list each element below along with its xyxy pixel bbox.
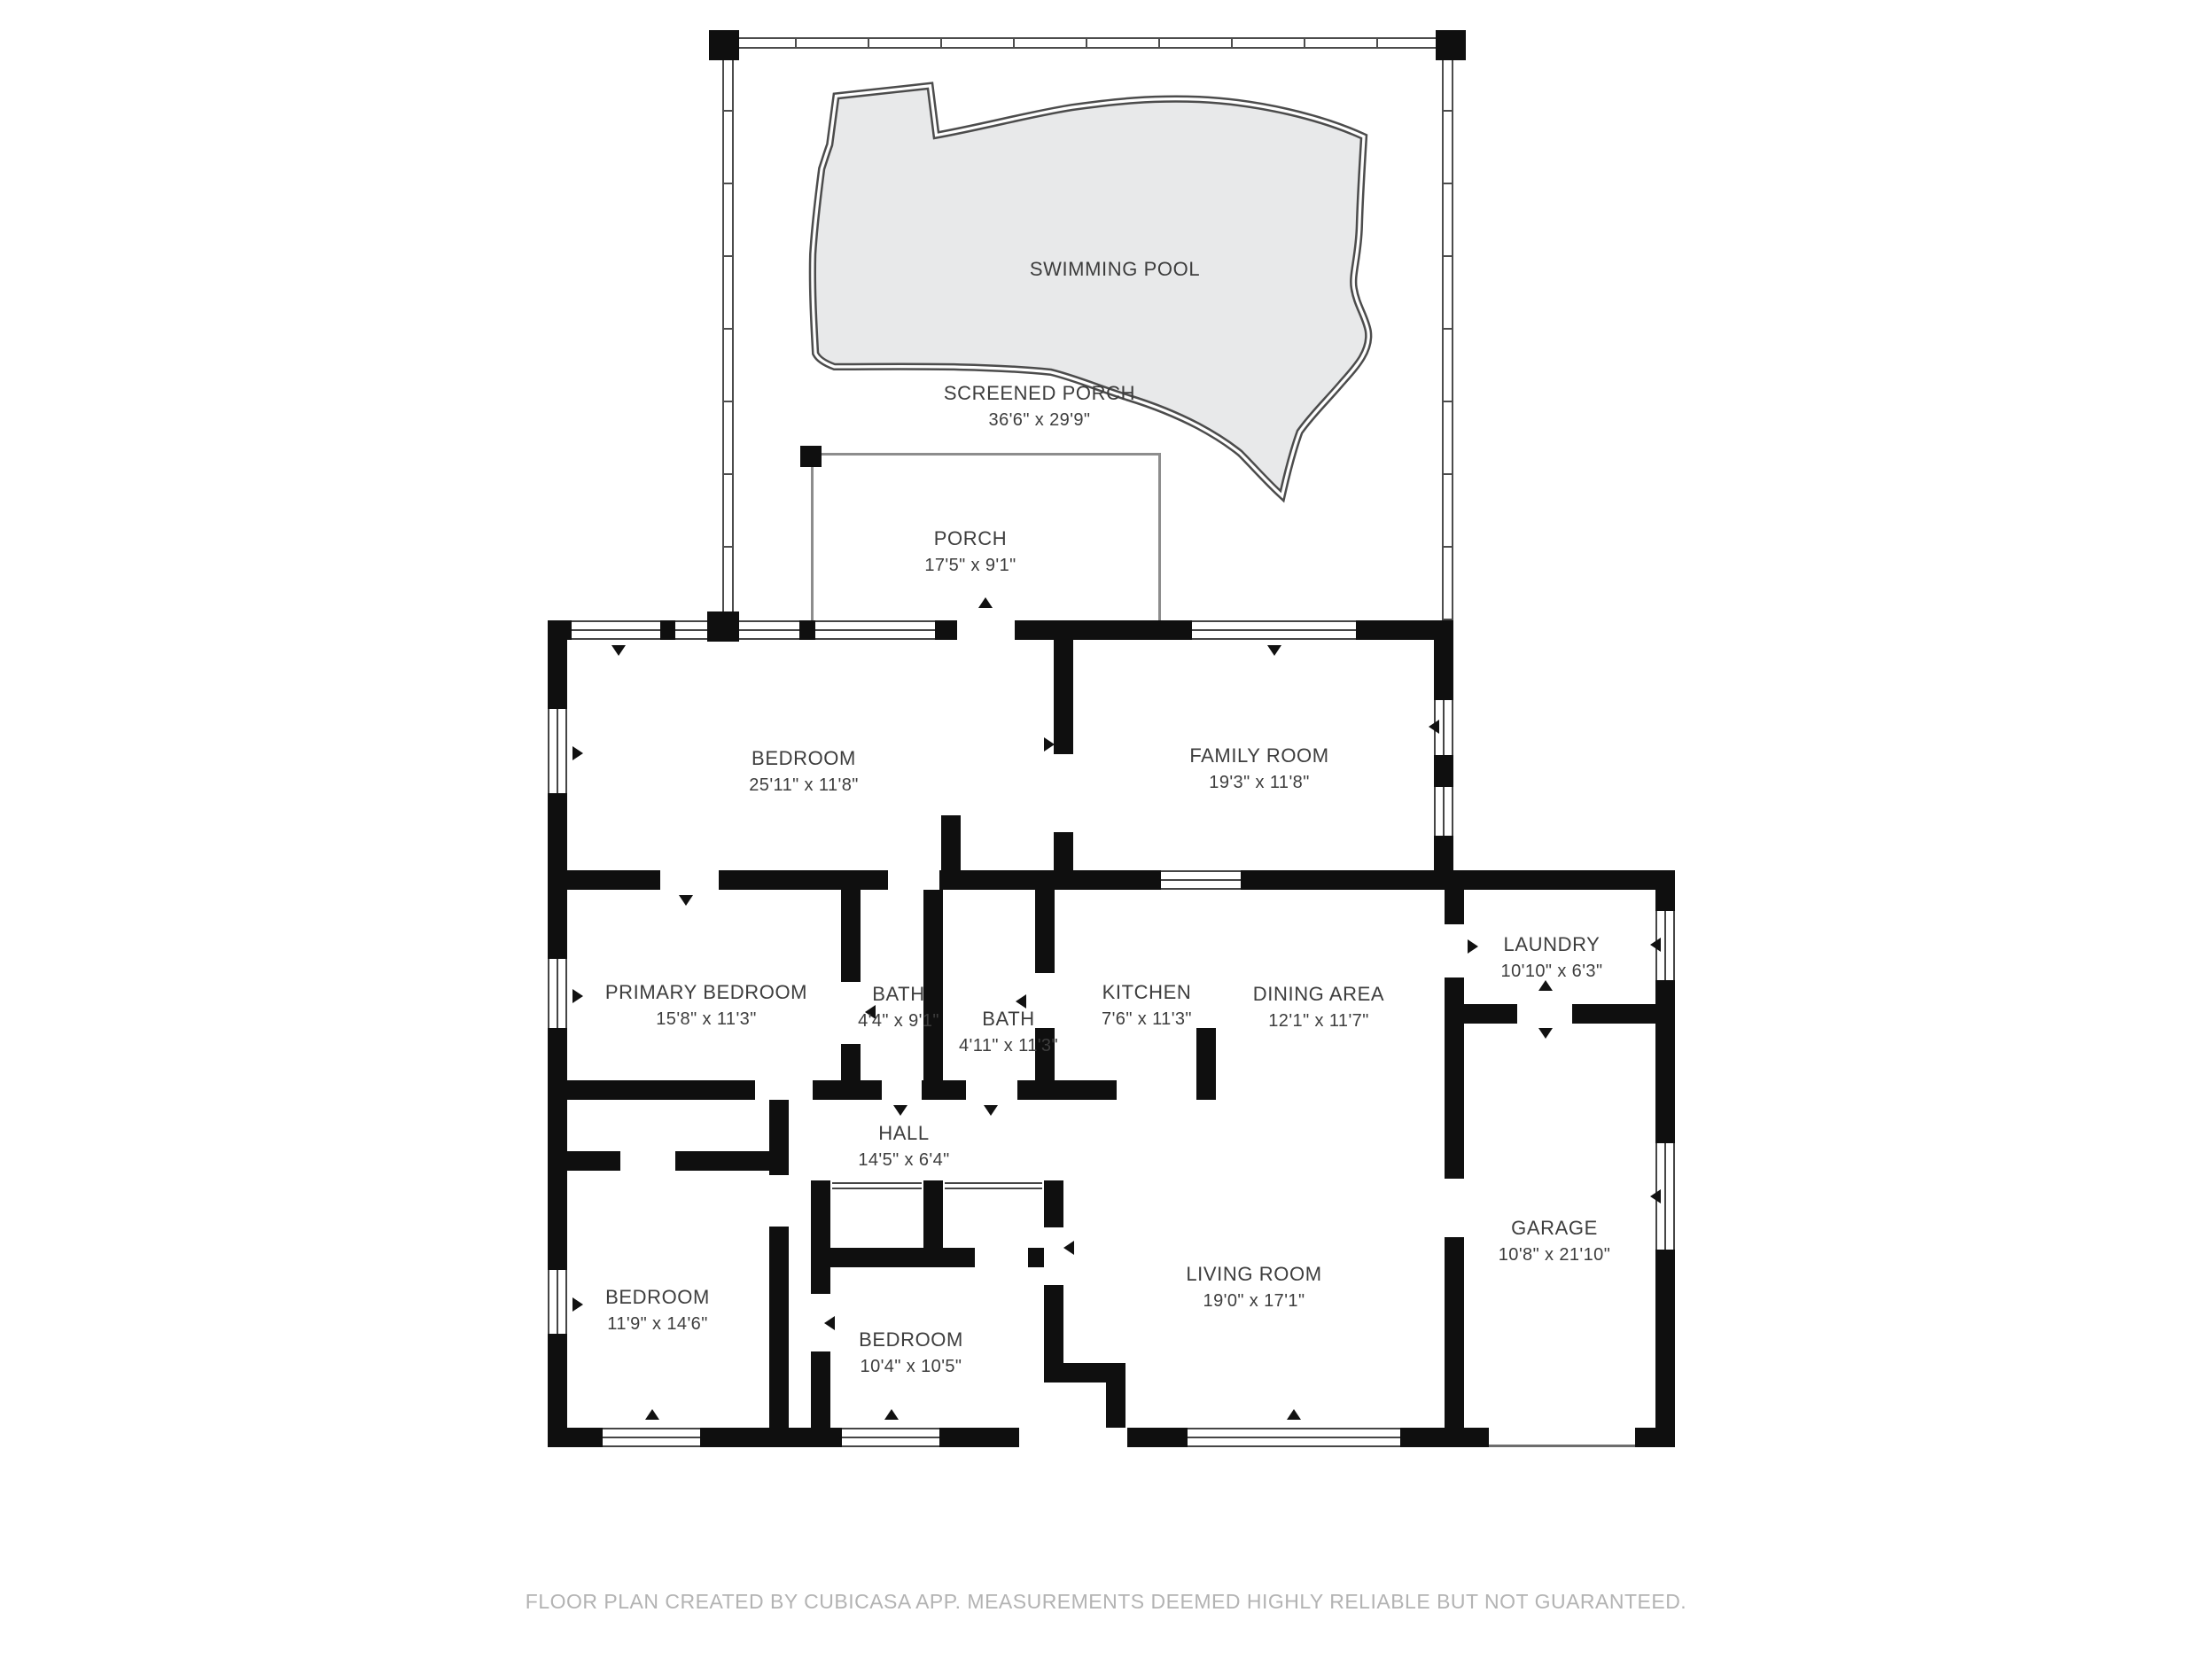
- wall-bedroom1-stub: [941, 815, 961, 870]
- room-dims: 12'1" x 11'7": [1253, 1009, 1384, 1034]
- room-dims: 17'5" x 9'1": [924, 553, 1016, 579]
- door-opening-bath2-hall: [966, 1080, 1017, 1100]
- room-name: BATH: [959, 1005, 1058, 1033]
- room-dims: 36'6" x 29'9": [944, 408, 1135, 433]
- window: [1434, 787, 1453, 836]
- porch-post: [709, 30, 739, 60]
- room-label-bath-large: BATH 4'11" x 11'3": [959, 1005, 1058, 1059]
- room-name: BEDROOM: [859, 1326, 963, 1354]
- room-label-porch: PORCH 17'5" x 9'1": [924, 525, 1016, 579]
- room-name: BEDROOM: [605, 1283, 710, 1312]
- room-name: KITCHEN: [1102, 978, 1192, 1007]
- window: [603, 1428, 700, 1447]
- porch-wall-top: [811, 453, 1161, 456]
- room-name: SWIMMING POOL: [1030, 255, 1200, 284]
- room-name: DINING AREA: [1253, 980, 1384, 1009]
- window: [548, 709, 567, 793]
- wall-closet-bottom-a: [830, 1248, 975, 1267]
- door-opening-bath-vestibule: [888, 870, 939, 890]
- room-dims: 7'6" x 11'3": [1102, 1007, 1192, 1032]
- wall-house-right-upper: [1434, 620, 1453, 890]
- room-dims: 4'11" x 11'3": [959, 1033, 1058, 1059]
- porch-post: [1436, 30, 1466, 60]
- room-label-family-room: FAMILY ROOM 19'3" x 11'8": [1189, 742, 1328, 796]
- door-arrow: [1650, 1189, 1661, 1203]
- door-arrow: [984, 1105, 998, 1116]
- room-dims: 14'5" x 6'4": [858, 1148, 949, 1173]
- floor-plan-page: { "rooms": [ {"id": "swimming-pool", "na…: [0, 0, 2212, 1659]
- door-arrow: [1287, 1409, 1301, 1420]
- room-dims: 19'0" x 17'1": [1186, 1289, 1321, 1314]
- screen-wall-top: [722, 37, 1453, 49]
- window: [548, 1270, 567, 1334]
- room-name: PRIMARY BEDROOM: [605, 978, 807, 1007]
- door-arrow: [1538, 1028, 1553, 1039]
- wall-closet-bottom-b: [1028, 1248, 1044, 1267]
- room-name: LAUNDRY: [1501, 931, 1603, 959]
- room-label-living-room: LIVING ROOM 19'0" x 17'1": [1186, 1260, 1321, 1314]
- door-opening-bedroom3-right: [1044, 1227, 1063, 1285]
- room-name: BEDROOM: [749, 744, 858, 773]
- wall-kitchen-bottom-stub: [1055, 1080, 1117, 1100]
- wall-wing-top: [1453, 870, 1675, 890]
- door-arrow: [1650, 938, 1661, 952]
- room-dims: 19'3" x 11'8": [1189, 770, 1328, 796]
- room-label-laundry: LAUNDRY 10'10" x 6'3": [1501, 931, 1603, 985]
- door-arrow: [978, 597, 993, 608]
- window: [842, 1428, 939, 1447]
- room-name: PORCH: [924, 525, 1016, 553]
- room-label-kitchen: KITCHEN 7'6" x 11'3": [1102, 978, 1192, 1032]
- window: [1161, 870, 1241, 890]
- window: [815, 620, 935, 640]
- window: [548, 959, 567, 1028]
- room-name: LIVING ROOM: [1186, 1260, 1321, 1289]
- wall-nook-vertical: [1106, 1382, 1125, 1428]
- door-arrow: [824, 1316, 835, 1330]
- room-label-hall: HALL 14'5" x 6'4": [858, 1119, 949, 1173]
- door-arrow: [1429, 720, 1439, 734]
- door-arrow: [645, 1409, 659, 1420]
- wall-nook-horizontal: [1044, 1363, 1125, 1382]
- door-opening-laundry-dining: [1445, 924, 1464, 977]
- window: [1192, 620, 1356, 640]
- room-label-garage: GARAGE 10'8" x 21'10": [1499, 1214, 1610, 1268]
- door-opening-primary: [660, 870, 719, 890]
- door-arrow: [611, 645, 626, 656]
- room-dims: 4'4" x 9'1": [858, 1009, 939, 1034]
- door-arrow: [884, 1409, 899, 1420]
- door-opening-garage-living: [1445, 1179, 1464, 1237]
- room-label-bedroom-top: BEDROOM 25'11" x 11'8": [749, 744, 858, 798]
- footer-credit: FLOOR PLAN CREATED BY CUBICASA APP. MEAS…: [526, 1590, 1686, 1614]
- room-label-dining-area: DINING AREA 12'1" x 11'7": [1253, 980, 1384, 1034]
- floor-plan: SWIMMING POOL SCREENED PORCH 36'6" x 29'…: [0, 0, 2212, 1659]
- room-label-bedroom-left: BEDROOM 11'9" x 14'6": [605, 1283, 710, 1337]
- door-opening-bedroom-family: [1054, 754, 1073, 832]
- door-arrow: [1267, 645, 1281, 656]
- room-label-swimming-pool: SWIMMING POOL: [1030, 255, 1200, 284]
- door-opening-living-patio: [1019, 1428, 1127, 1447]
- room-name: SCREENED PORCH: [944, 379, 1135, 408]
- garage-door-opening: [1489, 1428, 1635, 1447]
- door-arrow: [1468, 939, 1478, 954]
- window: [1188, 1428, 1400, 1447]
- door-opening-laundry-garage: [1517, 1004, 1572, 1024]
- porch-wall-right: [1158, 453, 1161, 625]
- door-arrow: [679, 895, 693, 906]
- door-arrow: [1063, 1241, 1074, 1255]
- room-dims: 10'8" x 21'10": [1499, 1242, 1610, 1268]
- porch-wall-left: [811, 453, 814, 625]
- porch-post: [707, 611, 739, 642]
- room-dims: 10'10" x 6'3": [1501, 959, 1603, 985]
- door-arrow: [572, 746, 583, 760]
- door-opening-bedroom2: [620, 1151, 675, 1171]
- room-label-bath-small: BATH 4'4" x 9'1": [858, 980, 939, 1034]
- room-label-screened-porch: SCREENED PORCH 36'6" x 29'9": [944, 379, 1135, 433]
- door-opening-primary-hall: [755, 1080, 813, 1100]
- room-name: GARAGE: [1499, 1214, 1610, 1242]
- room-name: HALL: [858, 1119, 949, 1148]
- screen-wall-right: [1442, 37, 1453, 625]
- door-arrow: [572, 1297, 583, 1312]
- screen-wall-left: [722, 37, 734, 625]
- room-dims: 25'11" x 11'8": [749, 773, 858, 798]
- wall-kitchen-stub: [1196, 1028, 1216, 1100]
- closet-sliding-door: [832, 1182, 922, 1189]
- window: [572, 620, 660, 640]
- room-dims: 10'4" x 10'5": [859, 1354, 963, 1380]
- door-opening-bedroom2-side: [769, 1175, 789, 1227]
- room-label-primary-bedroom: PRIMARY BEDROOM 15'8" x 11'3": [605, 978, 807, 1032]
- room-dims: 11'9" x 14'6": [605, 1312, 710, 1337]
- closet-sliding-door: [945, 1182, 1042, 1189]
- door-arrow: [1044, 737, 1055, 752]
- door-arrow: [572, 989, 583, 1003]
- wall-baths-bottom: [841, 1080, 1055, 1100]
- porch-post: [800, 446, 822, 467]
- door-opening-bath1-hall: [882, 1080, 922, 1100]
- room-name: FAMILY ROOM: [1189, 742, 1328, 770]
- room-dims: 15'8" x 11'3": [605, 1007, 807, 1032]
- door-arrow: [893, 1105, 907, 1116]
- room-name: BATH: [858, 980, 939, 1009]
- room-label-bedroom-middle: BEDROOM 10'4" x 10'5": [859, 1326, 963, 1380]
- door-opening-porch: [957, 620, 1015, 640]
